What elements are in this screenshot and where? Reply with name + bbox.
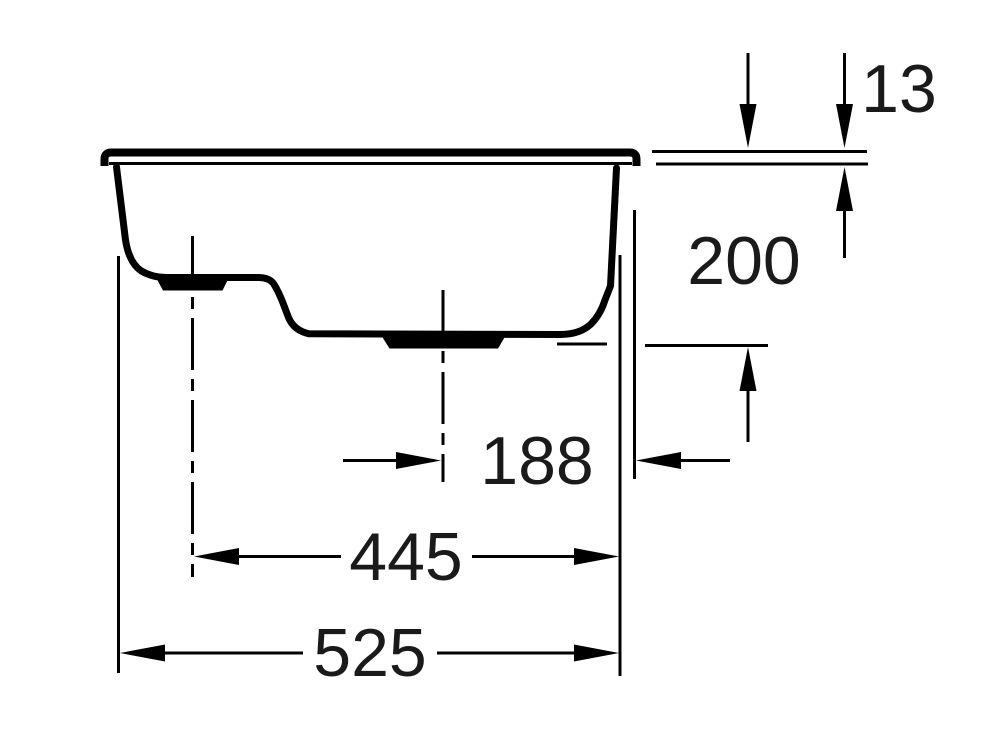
dim200-down-arrowhead: [740, 104, 757, 148]
dim445-left-arrowhead: [194, 548, 239, 565]
dim525-right-arrowhead: [574, 645, 619, 662]
dim188-right-pointing-arrowhead: [396, 452, 441, 469]
dim188-label: 188: [480, 423, 593, 499]
dim188-left-pointing-arrowhead: [636, 452, 681, 469]
dim445-label: 445: [349, 519, 462, 595]
dim525-left-arrowhead: [120, 645, 165, 662]
dimension-rim-height: 13: [836, 51, 937, 258]
dim13-down-arrowhead: [836, 104, 853, 148]
dim525-label: 525: [313, 615, 426, 691]
dim200-label: 200: [687, 223, 800, 299]
dim200-up-arrowhead: [740, 347, 757, 391]
dim445-right-arrowhead: [574, 548, 619, 565]
dim13-label: 13: [861, 51, 937, 127]
dimension-centers-span: 445: [194, 519, 619, 595]
sink-profile: [105, 153, 637, 349]
dimension-center-to-edge: 188: [343, 423, 730, 499]
drawing-canvas: 13 200 188 445 525: [0, 0, 992, 733]
dim13-up-arrowhead: [836, 167, 853, 211]
dimension-overall-width: 525: [120, 615, 619, 691]
dimension-overall-depth: 200: [687, 53, 800, 442]
sink-section-diagram: 13 200 188 445 525: [0, 0, 992, 733]
